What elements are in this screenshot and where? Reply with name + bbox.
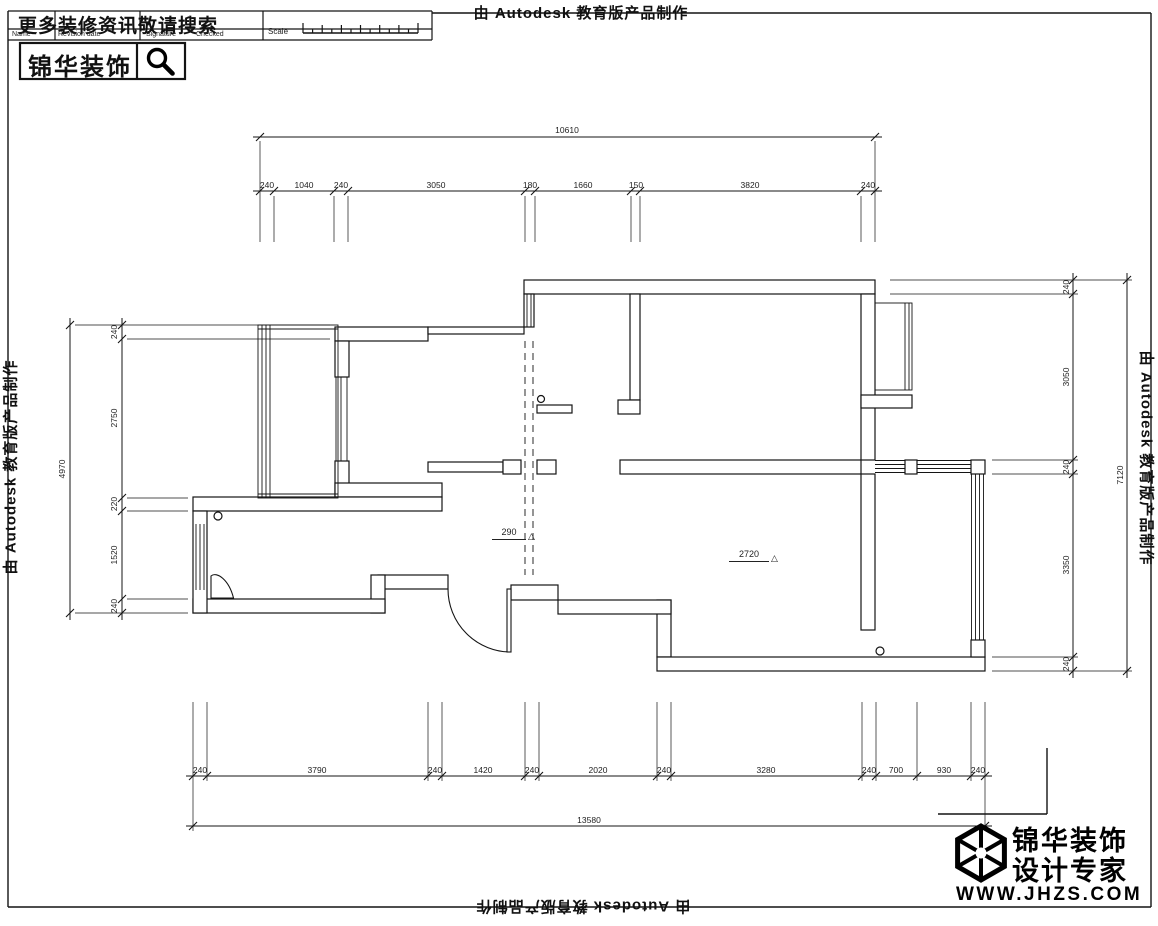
dim-left-1: 2750 bbox=[110, 409, 119, 428]
dim-top-0: 240 bbox=[260, 181, 274, 190]
dim-bottom-0: 240 bbox=[193, 766, 207, 775]
dim-right-4: 240 bbox=[1062, 657, 1071, 671]
field-checked: Checked bbox=[196, 31, 224, 38]
dim-bottom-8: 240 bbox=[862, 766, 876, 775]
level-triangle-icon: △ bbox=[528, 532, 535, 541]
edu-banner-left: 由 Autodesk 教育版产品制作 bbox=[0, 360, 21, 575]
drawing-canvas bbox=[0, 0, 1158, 926]
dim-bottom-5: 2020 bbox=[589, 766, 608, 775]
dim-left-overall: 4970 bbox=[58, 460, 67, 479]
logo-tagline: 设计专家 bbox=[1012, 849, 1128, 888]
field-revision-date: Revision date bbox=[58, 31, 100, 38]
dim-bottom-2: 240 bbox=[428, 766, 442, 775]
dim-bottom-6: 240 bbox=[657, 766, 671, 775]
edu-banner-right: 由 Autodesk 教育版产品制作 bbox=[1137, 351, 1158, 566]
logo-website: WWW.JHZS.COM bbox=[956, 884, 1142, 906]
window-mullions bbox=[905, 460, 985, 657]
dim-top-1: 1040 bbox=[295, 181, 314, 190]
entry-door bbox=[448, 589, 511, 652]
level-triangle-icon: △ bbox=[771, 554, 778, 563]
field-scale: Scale bbox=[268, 28, 288, 36]
dim-right-3: 3350 bbox=[1062, 556, 1071, 575]
scale-ruler bbox=[303, 23, 418, 33]
dim-top-5: 1660 bbox=[574, 181, 593, 190]
brand-cube-icon bbox=[958, 826, 1005, 880]
dim-left-0: 240 bbox=[110, 325, 119, 339]
brand-name: 锦华装饰 bbox=[28, 47, 132, 82]
dim-left-4: 240 bbox=[110, 599, 119, 613]
level-mark-2720: 2720 bbox=[729, 550, 769, 562]
level-mark-290: 290 bbox=[492, 528, 526, 540]
edu-banner-top: 由 Autodesk 教育版产品制作 bbox=[474, 2, 689, 23]
field-name: Name bbox=[12, 31, 31, 38]
cad-floorplan-page: { "banners": { "edu_stamp": "由 Autodesk … bbox=[0, 0, 1158, 926]
dim-top-4: 180 bbox=[523, 181, 537, 190]
dim-left-3: 1520 bbox=[110, 546, 119, 565]
field-signature: Signature bbox=[146, 31, 176, 38]
dim-top-overall: 10610 bbox=[555, 126, 579, 135]
dim-bottom-1: 3790 bbox=[308, 766, 327, 775]
dim-right-1: 3050 bbox=[1062, 368, 1071, 387]
dim-top-2: 240 bbox=[334, 181, 348, 190]
plan-fixtures bbox=[211, 396, 884, 656]
dim-right-2: 240 bbox=[1062, 460, 1071, 474]
dim-bottom-11: 240 bbox=[971, 766, 985, 775]
search-icon bbox=[149, 50, 173, 74]
dim-top-6: 150 bbox=[629, 181, 643, 190]
titleblock-headline: 更多装修资讯敬请搜索 bbox=[18, 11, 218, 38]
dim-top-3: 3050 bbox=[427, 181, 446, 190]
dim-bottom-4: 240 bbox=[525, 766, 539, 775]
dim-bottom-10: 930 bbox=[937, 766, 951, 775]
dim-bottom-9: 700 bbox=[889, 766, 903, 775]
dim-top-7: 3820 bbox=[741, 181, 760, 190]
edu-banner-bottom: 由 Autodesk 教育版产品制作 bbox=[476, 897, 691, 918]
dim-bottom-3: 1420 bbox=[474, 766, 493, 775]
dim-top-8: 240 bbox=[861, 181, 875, 190]
dim-right-overall: 7120 bbox=[1116, 466, 1125, 485]
dim-left-2: 220 bbox=[110, 497, 119, 511]
dim-bottom-7: 3280 bbox=[757, 766, 776, 775]
dim-bottom-overall: 13580 bbox=[577, 816, 601, 825]
dim-right-0: 240 bbox=[1062, 280, 1071, 294]
dimension-lines bbox=[66, 133, 1132, 831]
